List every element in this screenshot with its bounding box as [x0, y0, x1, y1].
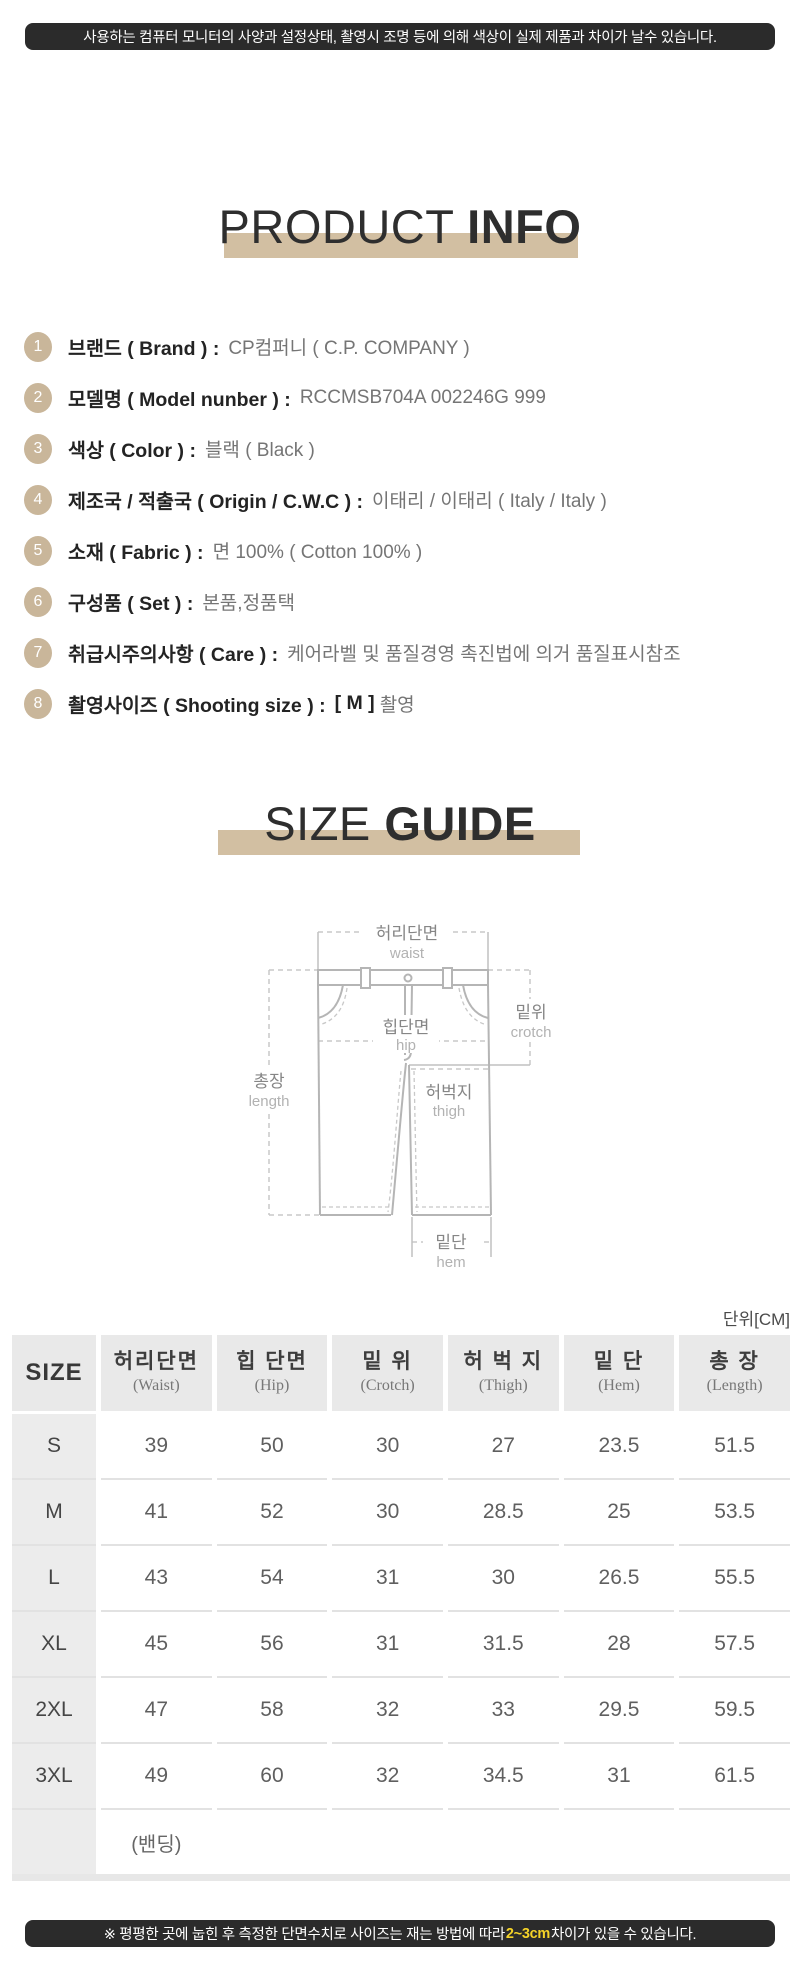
table-header-hip: 힙 단면(Hip): [217, 1335, 328, 1414]
title-word-guide: GUIDE: [384, 797, 535, 850]
table-cell: 60: [217, 1744, 328, 1810]
title-word-info: INFO: [467, 200, 581, 253]
item-label: 촬영사이즈 ( Shooting size ) :: [68, 689, 326, 718]
top-notice-banner: 사용하는 컴퓨터 모니터의 사양과 설정상태, 촬영시 조명 등에 의해 색상이…: [25, 23, 775, 50]
item-value: CP컴퍼니 ( C.P. COMPANY ): [228, 333, 469, 360]
item-value: 촬영: [380, 690, 415, 717]
item-label: 구성품 ( Set ) :: [68, 587, 193, 616]
title-word-product: PRODUCT: [219, 200, 454, 253]
product-info-heading: PRODUCT INFO: [0, 196, 800, 258]
table-cell: 31.5: [448, 1612, 559, 1678]
item-number-badge: 1: [24, 332, 52, 362]
size-column-cell: 2XL: [12, 1678, 96, 1744]
size-unit-label: 단위[CM]: [723, 1305, 790, 1330]
item-number-badge: 2: [24, 383, 52, 413]
title-word-size: SIZE: [264, 797, 370, 850]
product-info-title: PRODUCT INFO: [0, 196, 800, 268]
size-column-cell: [12, 1810, 96, 1874]
item-value: 케어라벨 및 품질경영 촉진법에 의거 품질표시참조: [287, 639, 680, 666]
table-row: L 43 54 31 30 26.5 55.5: [12, 1546, 790, 1612]
table-cell: [564, 1810, 675, 1874]
table-cell: (밴딩): [101, 1810, 212, 1874]
table-cell: 58: [217, 1678, 328, 1744]
product-info-list: 1 브랜드 ( Brand ) : CP컴퍼니 ( C.P. COMPANY )…: [24, 331, 681, 739]
bottom-notice-suffix: 차이가 있을 수 있습니다.: [551, 1923, 696, 1944]
waist-label-en: waist: [389, 945, 425, 962]
table-cell: [679, 1810, 790, 1874]
product-info-item: 7 취급시주의사항 ( Care ) : 케어라벨 및 품질경영 촉진법에 의거…: [24, 637, 681, 668]
table-header-crotch: 밑 위(Crotch): [332, 1335, 443, 1414]
table-cell: 31: [332, 1612, 443, 1678]
table-cell: 30: [332, 1414, 443, 1480]
table-header-hem: 밑 단(Hem): [564, 1335, 675, 1414]
product-info-item: 2 모델명 ( Model nunber ) : RCCMSB704A 0022…: [24, 382, 681, 413]
size-column-cell: S: [12, 1414, 96, 1480]
table-cell: 50: [217, 1414, 328, 1480]
table-cell: 34.5: [448, 1744, 559, 1810]
size-guide-heading: SIZE GUIDE: [0, 793, 800, 855]
table-cell: 55.5: [679, 1546, 790, 1612]
item-number-badge: 3: [24, 434, 52, 464]
table-header-waist: 허리단면(Waist): [101, 1335, 212, 1414]
crotch-label-ko: 밑위: [515, 1003, 546, 1022]
table-cell: 45: [101, 1612, 212, 1678]
item-value: RCCMSB704A 002246G 999: [300, 387, 546, 409]
product-info-item: 1 브랜드 ( Brand ) : CP컴퍼니 ( C.P. COMPANY ): [24, 331, 681, 362]
length-label-ko: 총장: [253, 1072, 285, 1091]
product-info-item: 5 소재 ( Fabric ) : 면 100% ( Cotton 100% ): [24, 535, 681, 566]
hem-label-ko: 밑단: [435, 1233, 467, 1252]
table-cell: 49: [101, 1744, 212, 1810]
size-column-cell: 3XL: [12, 1744, 96, 1810]
table-cell: 28.5: [448, 1480, 559, 1546]
item-label: 취급시주의사항 ( Care ) :: [68, 638, 278, 667]
table-cell: 31: [332, 1546, 443, 1612]
item-value: 면 100% ( Cotton 100% ): [213, 537, 423, 564]
item-number-badge: 7: [24, 638, 52, 668]
table-header-thigh: 허 벅 지(Thigh): [448, 1335, 559, 1414]
table-cell: 43: [101, 1546, 212, 1612]
table-cell: 33: [448, 1678, 559, 1744]
pants-measurement-diagram: 허리단면 waist 밑위 crotch 힙단면 hip 총장 length 허…: [185, 885, 625, 1295]
table-bottom-border: [12, 1874, 790, 1881]
table-cell: [217, 1810, 328, 1874]
table-cell: 30: [332, 1480, 443, 1546]
highlight-text: 2~3cm: [506, 1926, 550, 1942]
table-cell: 29.5: [564, 1678, 675, 1744]
item-label: 제조국 / 적출국 ( Origin / C.W.C ) :: [68, 485, 363, 514]
table-header-row: SIZE 허리단면(Waist) 힙 단면(Hip) 밑 위(Crotch) 허…: [12, 1335, 790, 1414]
item-number-badge: 6: [24, 587, 52, 617]
table-cell: 23.5: [564, 1414, 675, 1480]
waist-label-ko: 허리단면: [376, 924, 439, 943]
table-cell: 53.5: [679, 1480, 790, 1546]
table-footer-row: (밴딩): [12, 1810, 790, 1874]
table-row: 2XL 47 58 32 33 29.5 59.5: [12, 1678, 790, 1744]
table-cell: 39: [101, 1414, 212, 1480]
hem-label-en: hem: [436, 1254, 465, 1271]
size-table: SIZE 허리단면(Waist) 힙 단면(Hip) 밑 위(Crotch) 허…: [7, 1335, 795, 1874]
table-cell: 27: [448, 1414, 559, 1480]
table-cell: 32: [332, 1678, 443, 1744]
table-cell: 30: [448, 1546, 559, 1612]
item-value: 블랙 ( Black ): [205, 435, 315, 462]
item-number-badge: 4: [24, 485, 52, 515]
item-label: 브랜드 ( Brand ) :: [68, 332, 219, 361]
hip-label-ko: 힙단면: [383, 1018, 430, 1037]
table-cell: 32: [332, 1744, 443, 1810]
table-cell: 26.5: [564, 1546, 675, 1612]
table-cell: 41: [101, 1480, 212, 1546]
size-column-cell: M: [12, 1480, 96, 1546]
product-info-item: 8 촬영사이즈 ( Shooting size ) : [ M ] 촬영: [24, 688, 681, 719]
table-cell: 47: [101, 1678, 212, 1744]
table-cell: 61.5: [679, 1744, 790, 1810]
table-row: XL 45 56 31 31.5 28 57.5: [12, 1612, 790, 1678]
bottom-notice-banner: ※ 평평한 곳에 눕힌 후 측정한 단면수치로 사이즈는 재는 방법에 따라 2…: [25, 1920, 775, 1947]
table-row: M 41 52 30 28.5 25 53.5: [12, 1480, 790, 1546]
table-cell: 57.5: [679, 1612, 790, 1678]
crotch-label-en: crotch: [511, 1024, 552, 1041]
table-cell: 31: [564, 1744, 675, 1810]
item-value: 본품,정품택: [202, 588, 295, 615]
table-cell: 25: [564, 1480, 675, 1546]
thigh-label-ko: 허벅지: [426, 1083, 473, 1102]
bottom-notice-prefix: ※ 평평한 곳에 눕힌 후 측정한 단면수치로 사이즈는 재는 방법에 따라: [104, 1923, 505, 1944]
table-cell: 54: [217, 1546, 328, 1612]
size-column-cell: L: [12, 1546, 96, 1612]
hip-label-en: hip: [396, 1037, 416, 1054]
table-cell: 52: [217, 1480, 328, 1546]
length-label-en: length: [249, 1093, 290, 1110]
thigh-label-en: thigh: [433, 1103, 466, 1120]
table-cell: 59.5: [679, 1678, 790, 1744]
item-value-bold: [ M ]: [335, 692, 375, 715]
product-info-item: 6 구성품 ( Set ) : 본품,정품택: [24, 586, 681, 617]
size-column-cell: XL: [12, 1612, 96, 1678]
table-header-size: SIZE: [12, 1335, 96, 1414]
table-row: S 39 50 30 27 23.5 51.5: [12, 1414, 790, 1480]
table-cell: 51.5: [679, 1414, 790, 1480]
table-cell: 28: [564, 1612, 675, 1678]
table-cell: [332, 1810, 443, 1874]
product-detail-page: 사용하는 컴퓨터 모니터의 사양과 설정상태, 촬영시 조명 등에 의해 색상이…: [0, 0, 800, 1987]
item-value: 이태리 / 이태리 ( Italy / Italy ): [372, 486, 607, 513]
size-guide-title: SIZE GUIDE: [0, 793, 800, 865]
product-info-item: 4 제조국 / 적출국 ( Origin / C.W.C ) : 이태리 / 이…: [24, 484, 681, 515]
item-number-badge: 5: [24, 536, 52, 566]
item-label: 모델명 ( Model nunber ) :: [68, 383, 291, 412]
table-cell: 56: [217, 1612, 328, 1678]
product-info-item: 3 색상 ( Color ) : 블랙 ( Black ): [24, 433, 681, 464]
item-label: 소재 ( Fabric ) :: [68, 536, 204, 565]
top-notice-text: 사용하는 컴퓨터 모니터의 사양과 설정상태, 촬영시 조명 등에 의해 색상이…: [83, 26, 716, 47]
item-number-badge: 8: [24, 689, 52, 719]
table-header-length: 총 장(Length): [679, 1335, 790, 1414]
table-row: 3XL 49 60 32 34.5 31 61.5: [12, 1744, 790, 1810]
item-label: 색상 ( Color ) :: [68, 434, 196, 463]
table-cell: [448, 1810, 559, 1874]
